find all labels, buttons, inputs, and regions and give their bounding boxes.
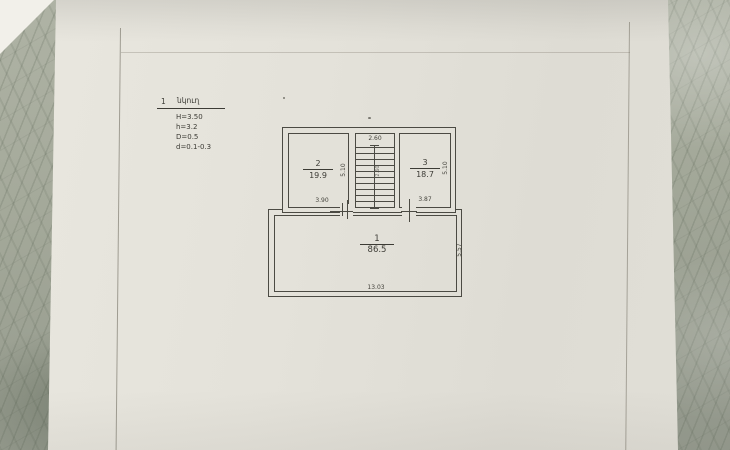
drawing-frame-left-line [116, 28, 121, 450]
dim-stair-note: 2.60 [375, 161, 381, 181]
stair-rail-cap-top [370, 145, 379, 146]
room3-number: 3 [410, 159, 440, 169]
room3-area: 18.7 [410, 169, 440, 179]
legend-item-title: նկուղ [177, 96, 199, 105]
dim-room2-depth: 5.10 [341, 158, 347, 182]
dim-room3-width: 3.87 [410, 197, 440, 203]
dim-room1-depth: 5.57 [457, 238, 463, 262]
room1-number: 1 [360, 235, 394, 245]
room2-area: 19.9 [303, 170, 333, 180]
legend-item-number: 1 [161, 97, 166, 106]
stair-rail-cap-bottom [370, 208, 379, 209]
legend-underline [157, 108, 225, 109]
door-room2-tick-vertical2 [342, 203, 343, 216]
drawing-frame-top-line [121, 52, 630, 53]
dim-room1-width: 13.03 [360, 285, 392, 291]
dim-room2-width: 3.90 [307, 198, 337, 204]
photo-of-floor-plan-document: 1 նկուղ H=3.50 h=3.2 D=0.5 d=0.1-0.3 [0, 0, 730, 450]
room1-area: 86.5 [360, 245, 394, 255]
paper-sheet: 1 նկուղ H=3.50 h=3.2 D=0.5 d=0.1-0.3 [0, 0, 730, 450]
dim-stair-width: 2.60 [360, 136, 390, 142]
legend-specs: H=3.50 h=3.2 D=0.5 d=0.1-0.3 [176, 112, 211, 152]
ink-speck [368, 117, 371, 119]
legend-spec-D: D=0.5 [176, 132, 211, 142]
dim-room3-depth: 5.10 [443, 156, 449, 180]
legend-spec-H: H=3.50 [176, 112, 211, 122]
legend-spec-h: h=3.2 [176, 122, 211, 132]
legend-spec-d: d=0.1-0.3 [176, 142, 211, 152]
room2-label: 2 19.9 [303, 160, 333, 180]
room2-number: 2 [303, 160, 333, 170]
door-room3-tick-horizontal [401, 211, 417, 212]
room3-label: 3 18.7 [410, 159, 440, 179]
drawing-frame-right-line [625, 22, 630, 450]
door-room2-tick-vertical [347, 200, 348, 219]
door-room2-tick-horizontal [330, 211, 353, 212]
ink-speck [283, 97, 285, 99]
room1-label: 1 86.5 [360, 235, 394, 255]
